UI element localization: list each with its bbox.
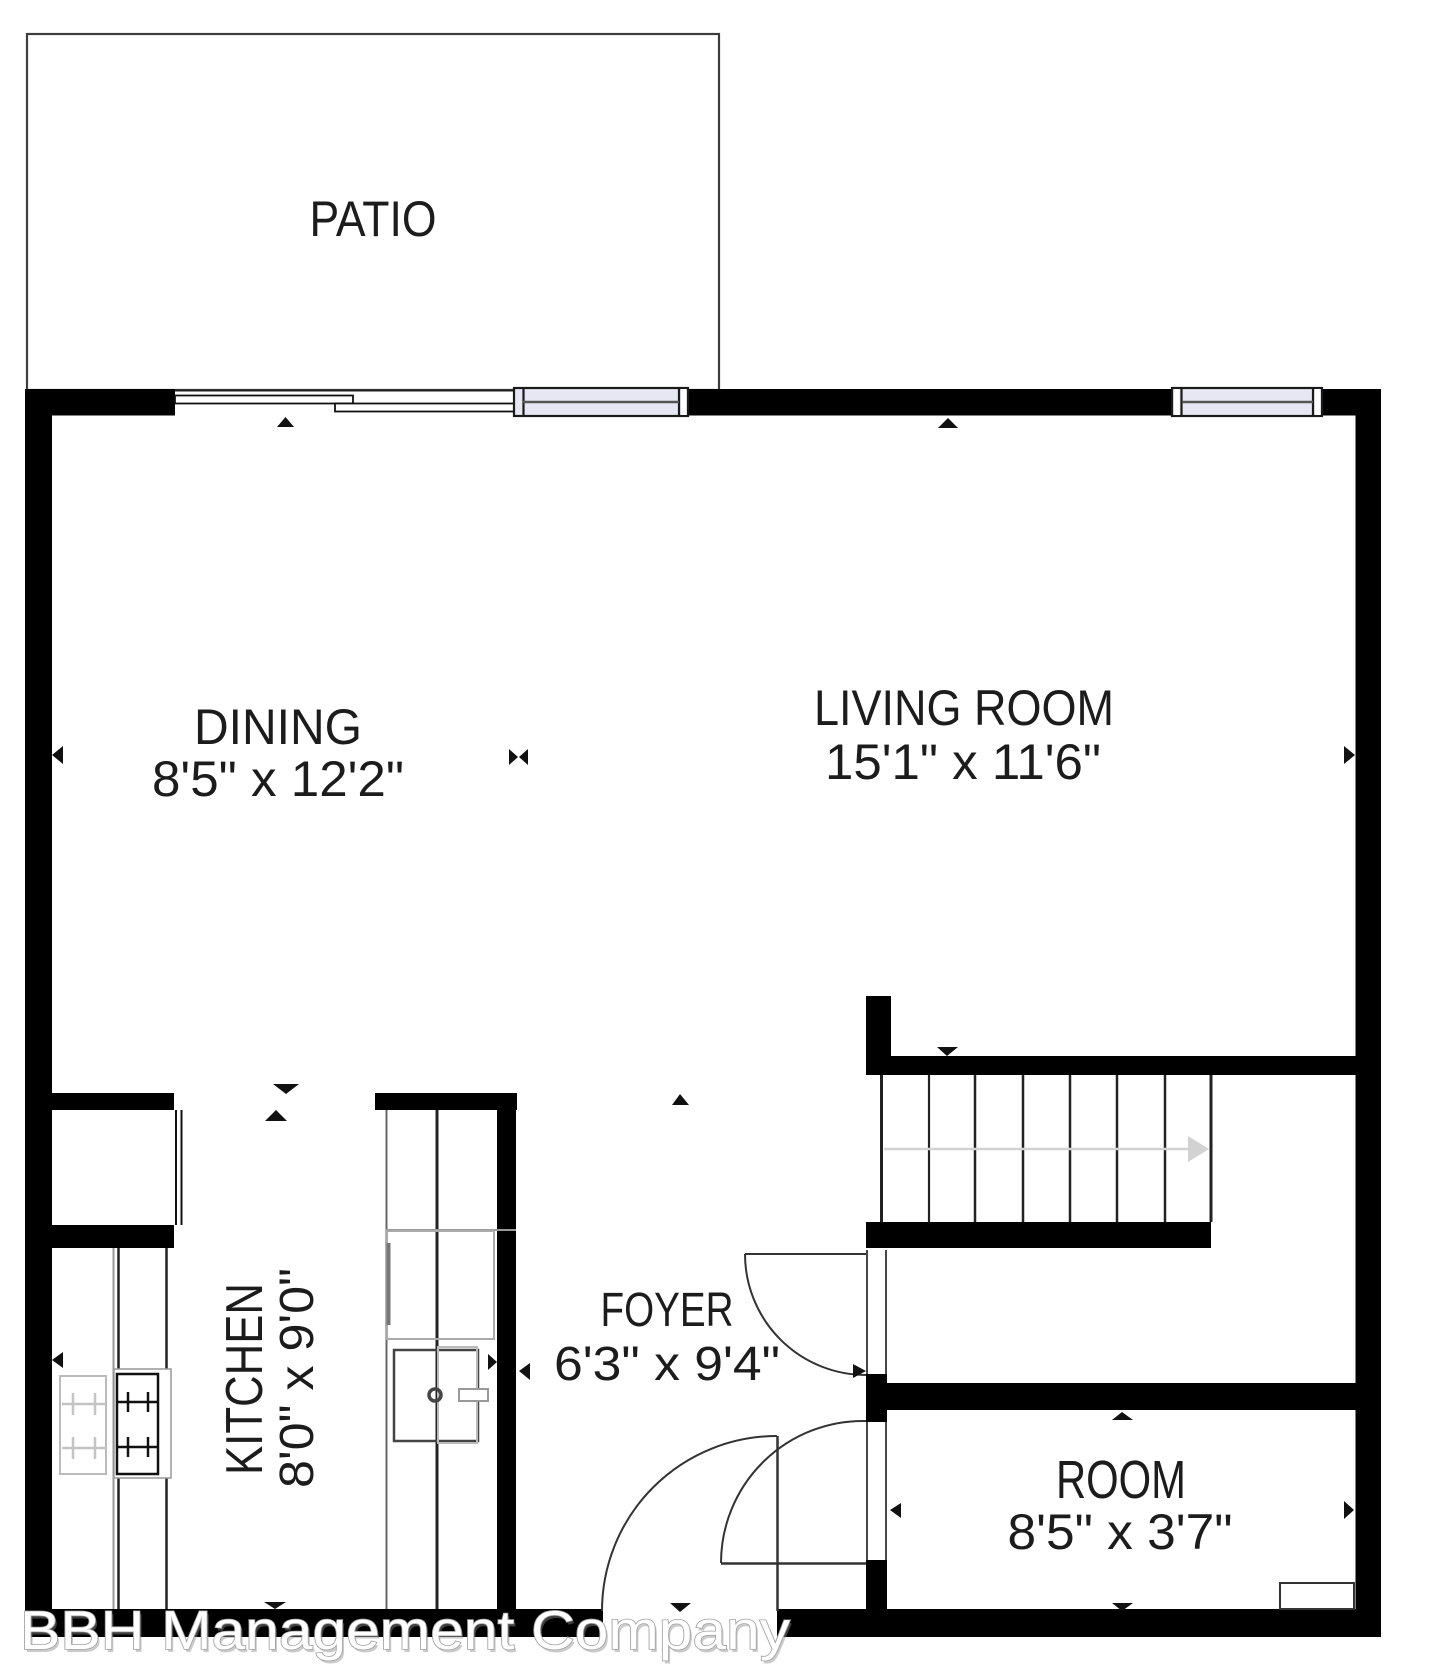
- svg-text:BBH Management Company: BBH Management Company: [20, 1599, 791, 1661]
- svg-text:FOYER: FOYER: [601, 1284, 734, 1337]
- svg-text:8'5" x 3'7": 8'5" x 3'7": [1008, 1504, 1233, 1560]
- svg-text:8'5" x 12'2": 8'5" x 12'2": [152, 751, 404, 807]
- svg-text:ROOM: ROOM: [1056, 1450, 1186, 1510]
- svg-text:DINING: DINING: [194, 699, 362, 755]
- svg-text:8'0" x 9'0": 8'0" x 9'0": [271, 1268, 324, 1488]
- svg-text:PATIO: PATIO: [310, 191, 437, 247]
- svg-text:15'1" x 11'6": 15'1" x 11'6": [825, 734, 1101, 790]
- svg-text:LIVING ROOM: LIVING ROOM: [814, 680, 1114, 736]
- svg-text:6'3" x 9'4": 6'3" x 9'4": [554, 1338, 780, 1391]
- svg-text:KITCHEN: KITCHEN: [216, 1283, 274, 1475]
